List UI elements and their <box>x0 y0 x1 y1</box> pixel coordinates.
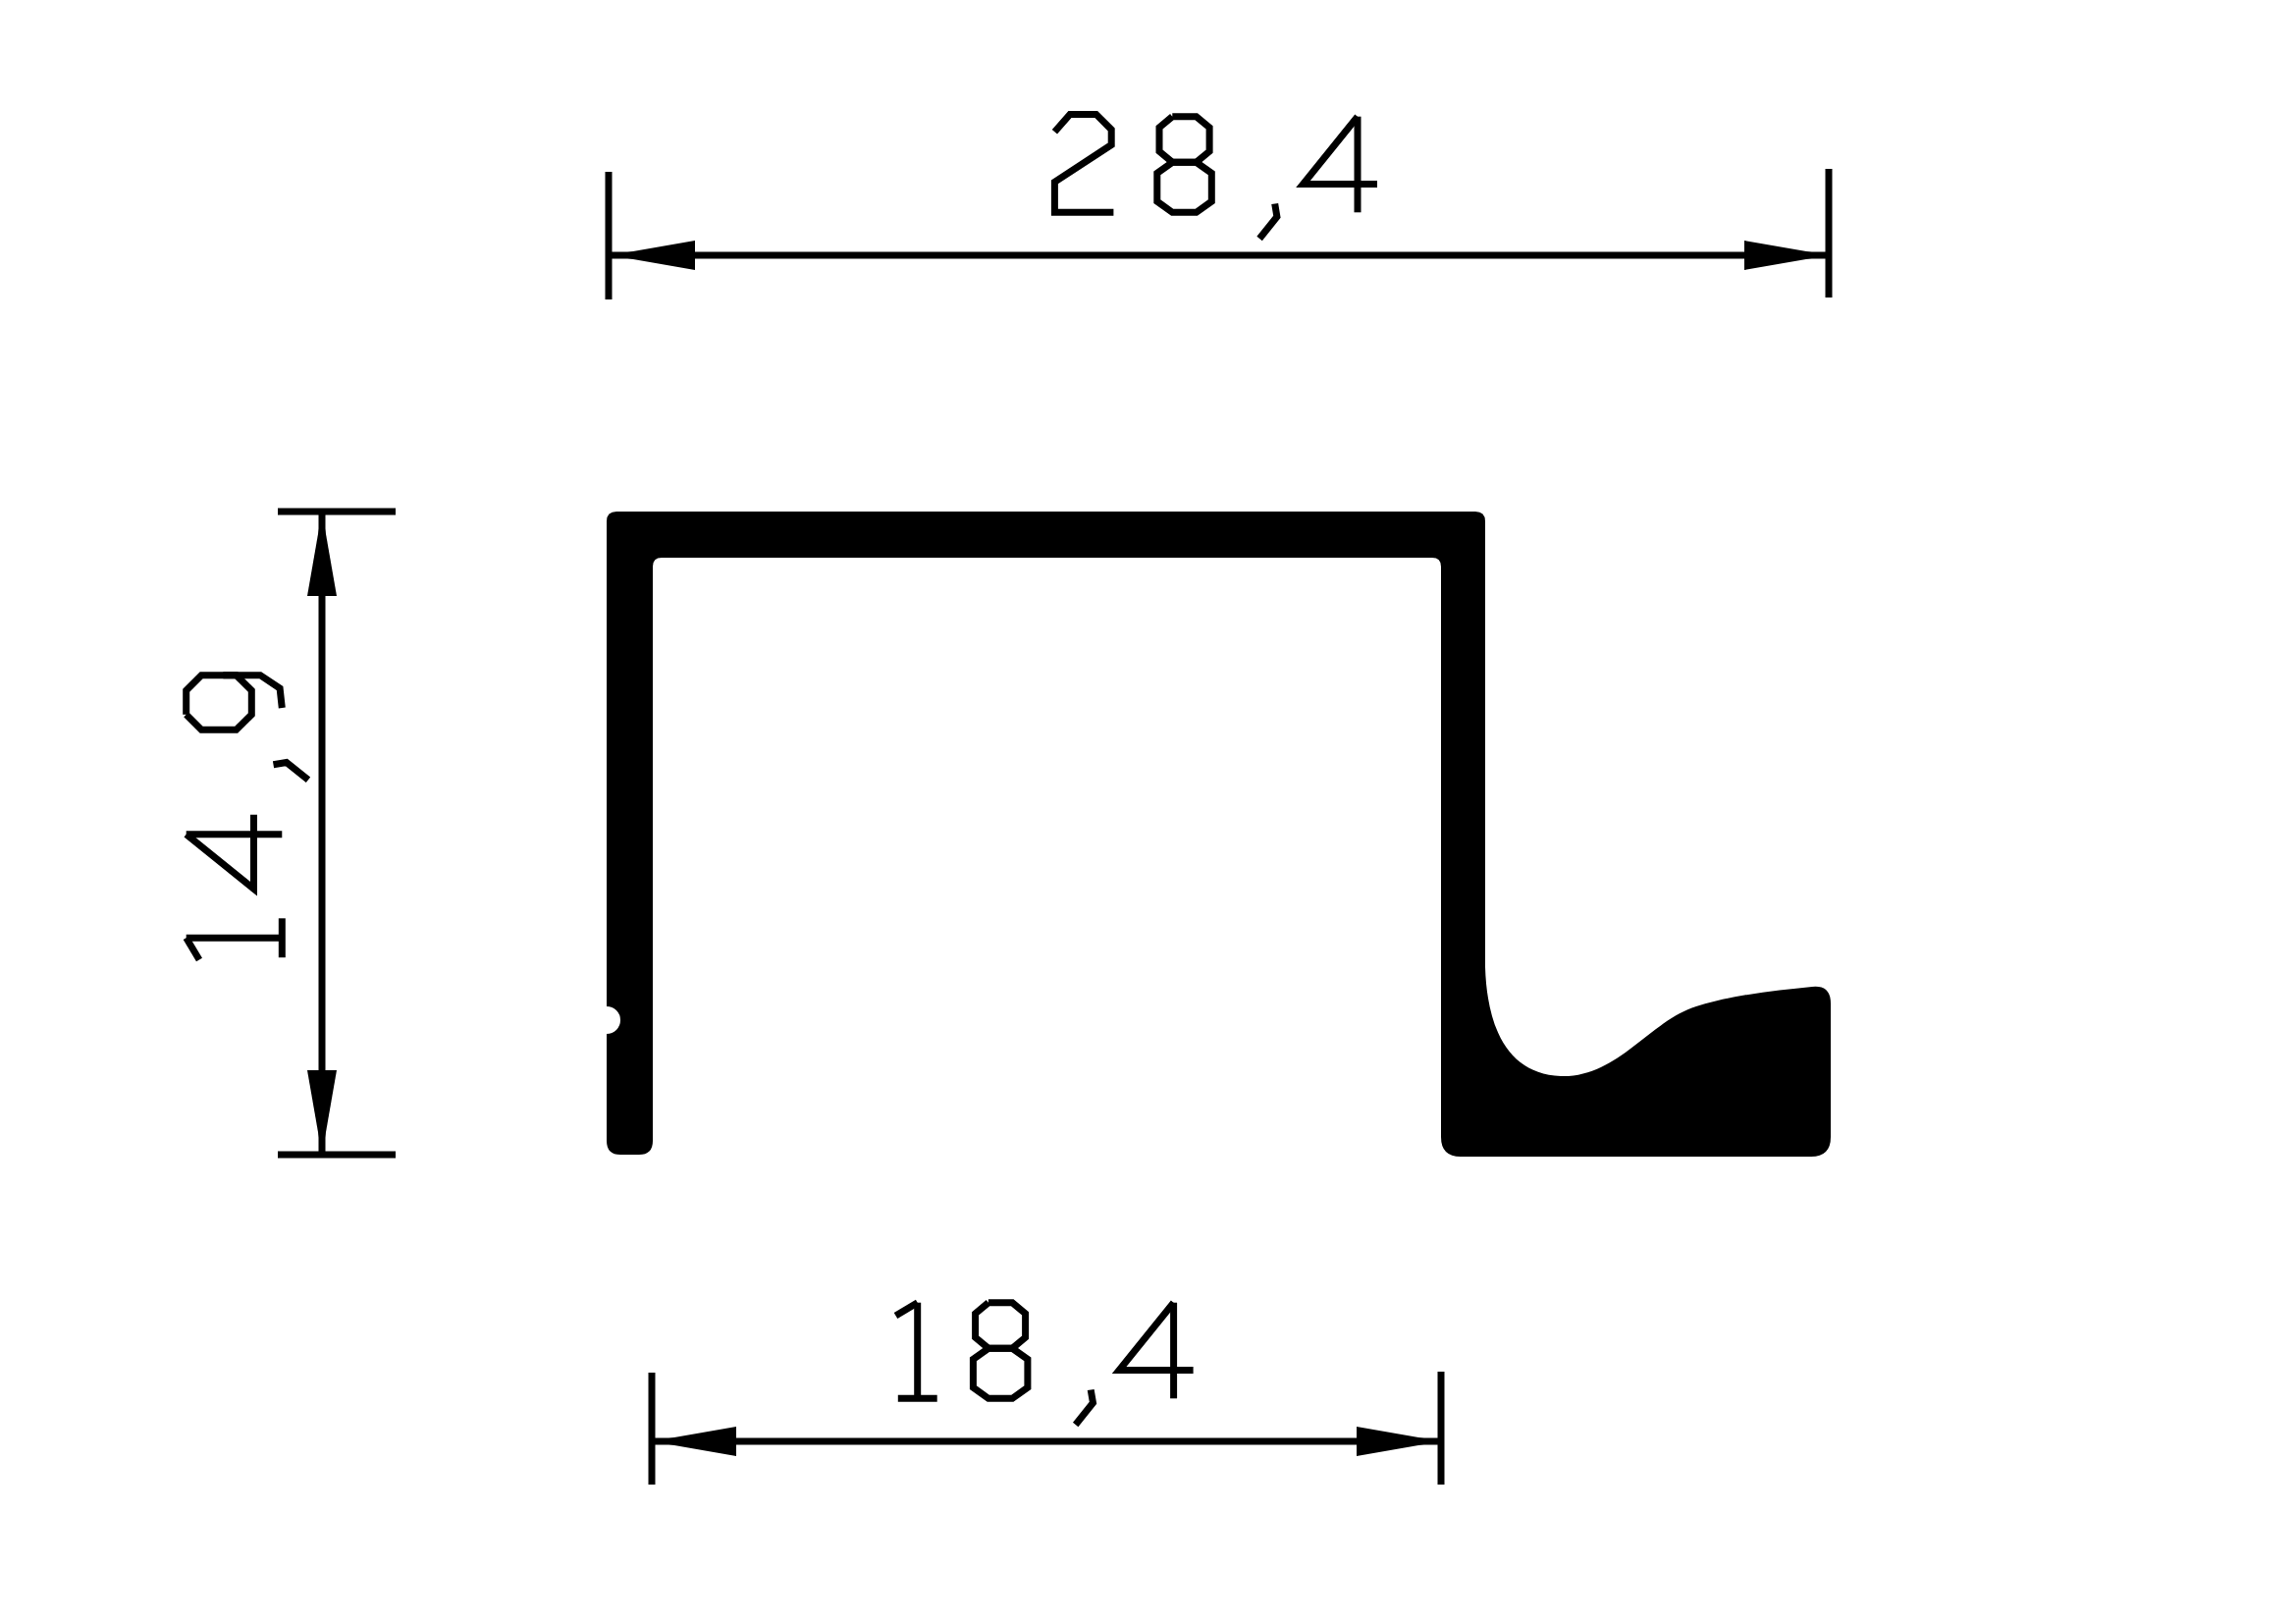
top-dimension-arrow-left <box>611 241 695 270</box>
top-dimension-arrow-right <box>1744 241 1829 270</box>
drawing-canvas <box>0 0 2296 1623</box>
left-dimension <box>187 512 396 1155</box>
dimension-digit-stroke <box>187 815 254 890</box>
dimension-digit-stroke <box>1054 114 1113 212</box>
dimension-digit-stroke <box>1119 1303 1194 1371</box>
left-dimension-label <box>187 676 308 960</box>
bottom-dimension-arrow-left <box>652 1427 736 1456</box>
dimension-digit-stroke <box>1159 117 1209 163</box>
dimension-digit-stroke <box>274 763 309 781</box>
dimension-digit-stroke <box>1304 117 1378 185</box>
profile-shape <box>607 512 1831 1157</box>
dimension-digit-stroke <box>1259 204 1277 240</box>
dimension-digit-stroke <box>187 676 252 730</box>
bottom-dimension <box>652 1303 1441 1485</box>
technical-drawing <box>0 0 2296 1623</box>
top-dimension <box>609 114 1829 299</box>
bottom-dimension-label <box>896 1303 1194 1425</box>
bottom-dimension-arrow-right <box>1357 1427 1441 1456</box>
left-dimension-arrow-bottom <box>307 1070 337 1155</box>
dimension-digit-stroke <box>976 1303 1026 1349</box>
dimension-digit-stroke <box>973 1348 1028 1398</box>
top-dimension-label <box>1054 114 1377 239</box>
dimension-digit-stroke <box>1157 162 1212 212</box>
dimension-digit-stroke <box>1076 1390 1094 1426</box>
left-dimension-arrow-top <box>307 512 337 596</box>
